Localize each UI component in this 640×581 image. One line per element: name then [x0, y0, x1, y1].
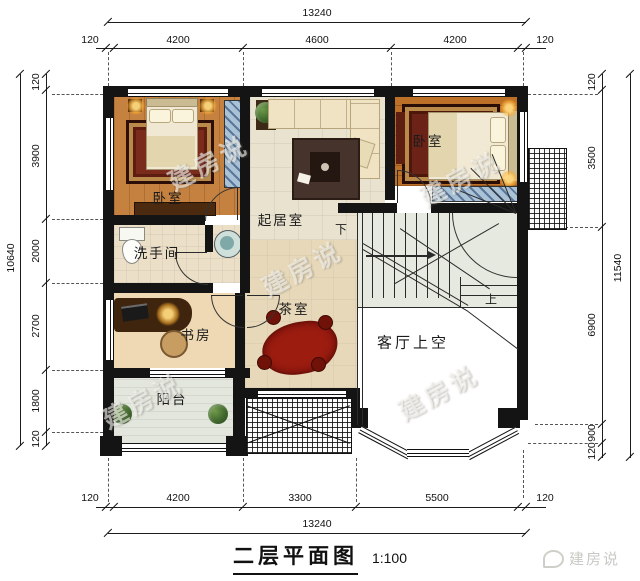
wall-segment — [385, 97, 395, 200]
room-label-balcony: 阳台 — [157, 388, 188, 408]
stair-edge — [460, 277, 461, 308]
dim-label: 11540 — [612, 254, 624, 282]
desk-lamp-glow — [156, 302, 180, 326]
stair-edge — [357, 213, 358, 425]
table-dish — [321, 163, 329, 171]
dim-line — [602, 74, 603, 458]
wash-basin-bowl — [220, 236, 234, 250]
room-label-bedroom-left: 卧室 — [153, 187, 184, 207]
lamp-glow — [127, 97, 145, 115]
axis-line — [52, 283, 103, 284]
dim-label: 5500 — [425, 492, 448, 504]
dim-line — [108, 533, 526, 534]
stair-tread — [449, 213, 450, 298]
bed-pillow — [149, 109, 171, 123]
dim-label: 3900 — [30, 144, 42, 167]
wall-segment — [338, 203, 397, 213]
dim-label: 1800 — [30, 389, 42, 412]
dim-line — [108, 22, 526, 23]
axis-line — [52, 94, 103, 95]
dim-line — [20, 74, 21, 446]
room-label-living: 起居室 — [258, 209, 305, 229]
dim-label: 2000 — [30, 239, 42, 262]
bay-window-post — [498, 408, 520, 428]
axis-line — [52, 432, 103, 433]
tea-seat — [311, 357, 326, 372]
dim-line — [630, 74, 631, 458]
axis-line — [52, 219, 103, 220]
window — [262, 88, 374, 97]
axis-line — [243, 458, 244, 502]
dim-label: 4200 — [166, 492, 189, 504]
balcony-door — [150, 370, 225, 378]
window — [105, 118, 114, 190]
wall-segment — [233, 378, 245, 444]
canopy-hatch — [246, 398, 352, 454]
stair-up-label: 上 — [485, 291, 497, 308]
dim-label: 13240 — [302, 518, 331, 530]
axis-line — [52, 370, 103, 371]
axis-line — [108, 52, 109, 86]
dim-label: 120 — [81, 492, 99, 504]
dim-label: 3300 — [288, 492, 311, 504]
tea-seat — [318, 315, 333, 330]
axis-line — [108, 458, 109, 502]
door-leaf — [397, 170, 398, 203]
room-label-void: 客厅上空 — [377, 332, 449, 353]
brand-logo: 建房说 — [543, 548, 620, 569]
dim-label: 900 — [586, 424, 598, 442]
dim-label: 120 — [81, 34, 99, 46]
window — [413, 88, 505, 97]
wall-segment — [205, 225, 213, 252]
dim-line — [96, 48, 546, 49]
axis-line — [528, 94, 598, 95]
dim-line — [46, 74, 47, 446]
chat-bubble-icon — [543, 550, 564, 568]
wall-segment — [240, 225, 250, 293]
dim-label: 120 — [30, 73, 42, 91]
wall-segment — [225, 368, 250, 378]
dim-label: 120 — [586, 73, 598, 91]
room-label-bedroom-right: 卧室 — [413, 130, 444, 150]
dim-label: 120 — [536, 492, 554, 504]
dim-label: 120 — [30, 430, 42, 448]
room-label-bathroom: 洗手间 — [134, 242, 181, 262]
room-label-tea: 茶室 — [279, 298, 310, 318]
flower-box-hatch — [528, 148, 567, 230]
dim-line — [96, 507, 546, 508]
bed-blanket — [147, 136, 195, 167]
dim-label: 4200 — [166, 34, 189, 46]
bay-window-wall — [407, 449, 469, 457]
window — [105, 300, 114, 360]
dim-label: 2700 — [30, 314, 42, 337]
bed-pillow — [172, 109, 194, 123]
tea-seat — [257, 355, 272, 370]
bay-window-wall — [358, 426, 411, 459]
dim-label: 6900 — [586, 313, 598, 336]
axis-line — [523, 450, 524, 498]
dim-label: 10640 — [5, 243, 17, 272]
axis-line — [528, 443, 598, 444]
floor-plan-canvas: 13240 120 4200 4600 4200 120 120 4200 33… — [0, 0, 640, 581]
balcony-railing — [114, 443, 233, 452]
axis-line — [535, 424, 598, 425]
door-leaf — [211, 295, 243, 296]
bay-window-wall — [466, 427, 519, 460]
window — [519, 112, 528, 182]
void-boundary-line — [468, 311, 519, 350]
wall-segment — [103, 368, 150, 378]
axis-line — [243, 52, 244, 86]
tv-cabinet — [396, 112, 405, 164]
dim-label: 4200 — [443, 34, 466, 46]
dim-label: 120 — [586, 442, 598, 460]
stair-down-label: 下 — [335, 221, 347, 238]
wall-segment — [114, 215, 205, 225]
watermark-text: 建房说 — [391, 356, 485, 429]
wall-segment — [240, 97, 250, 225]
drawing-title: 二层平面图 — [233, 540, 358, 575]
axis-line — [356, 458, 357, 502]
dim-label: 4600 — [305, 34, 328, 46]
axis-line — [523, 52, 524, 86]
brand-name: 建房说 — [569, 548, 620, 569]
lamp-glow — [500, 99, 518, 117]
balcony-plant — [208, 404, 228, 424]
drawing-scale: 1:100 — [372, 550, 407, 566]
lamp-glow — [199, 97, 217, 115]
dim-label: 13240 — [302, 7, 331, 19]
dim-label: 3500 — [586, 146, 598, 169]
window — [128, 88, 228, 97]
stair-tread — [460, 285, 517, 286]
wall-segment — [114, 283, 213, 293]
dim-label: 120 — [536, 34, 554, 46]
door-leaf — [237, 187, 238, 220]
balcony-plant — [112, 404, 132, 424]
axis-line — [391, 52, 392, 86]
bed-pillow — [490, 117, 506, 143]
room-label-study: 书房 — [181, 324, 212, 344]
door-leaf — [247, 295, 279, 296]
window — [258, 390, 346, 398]
